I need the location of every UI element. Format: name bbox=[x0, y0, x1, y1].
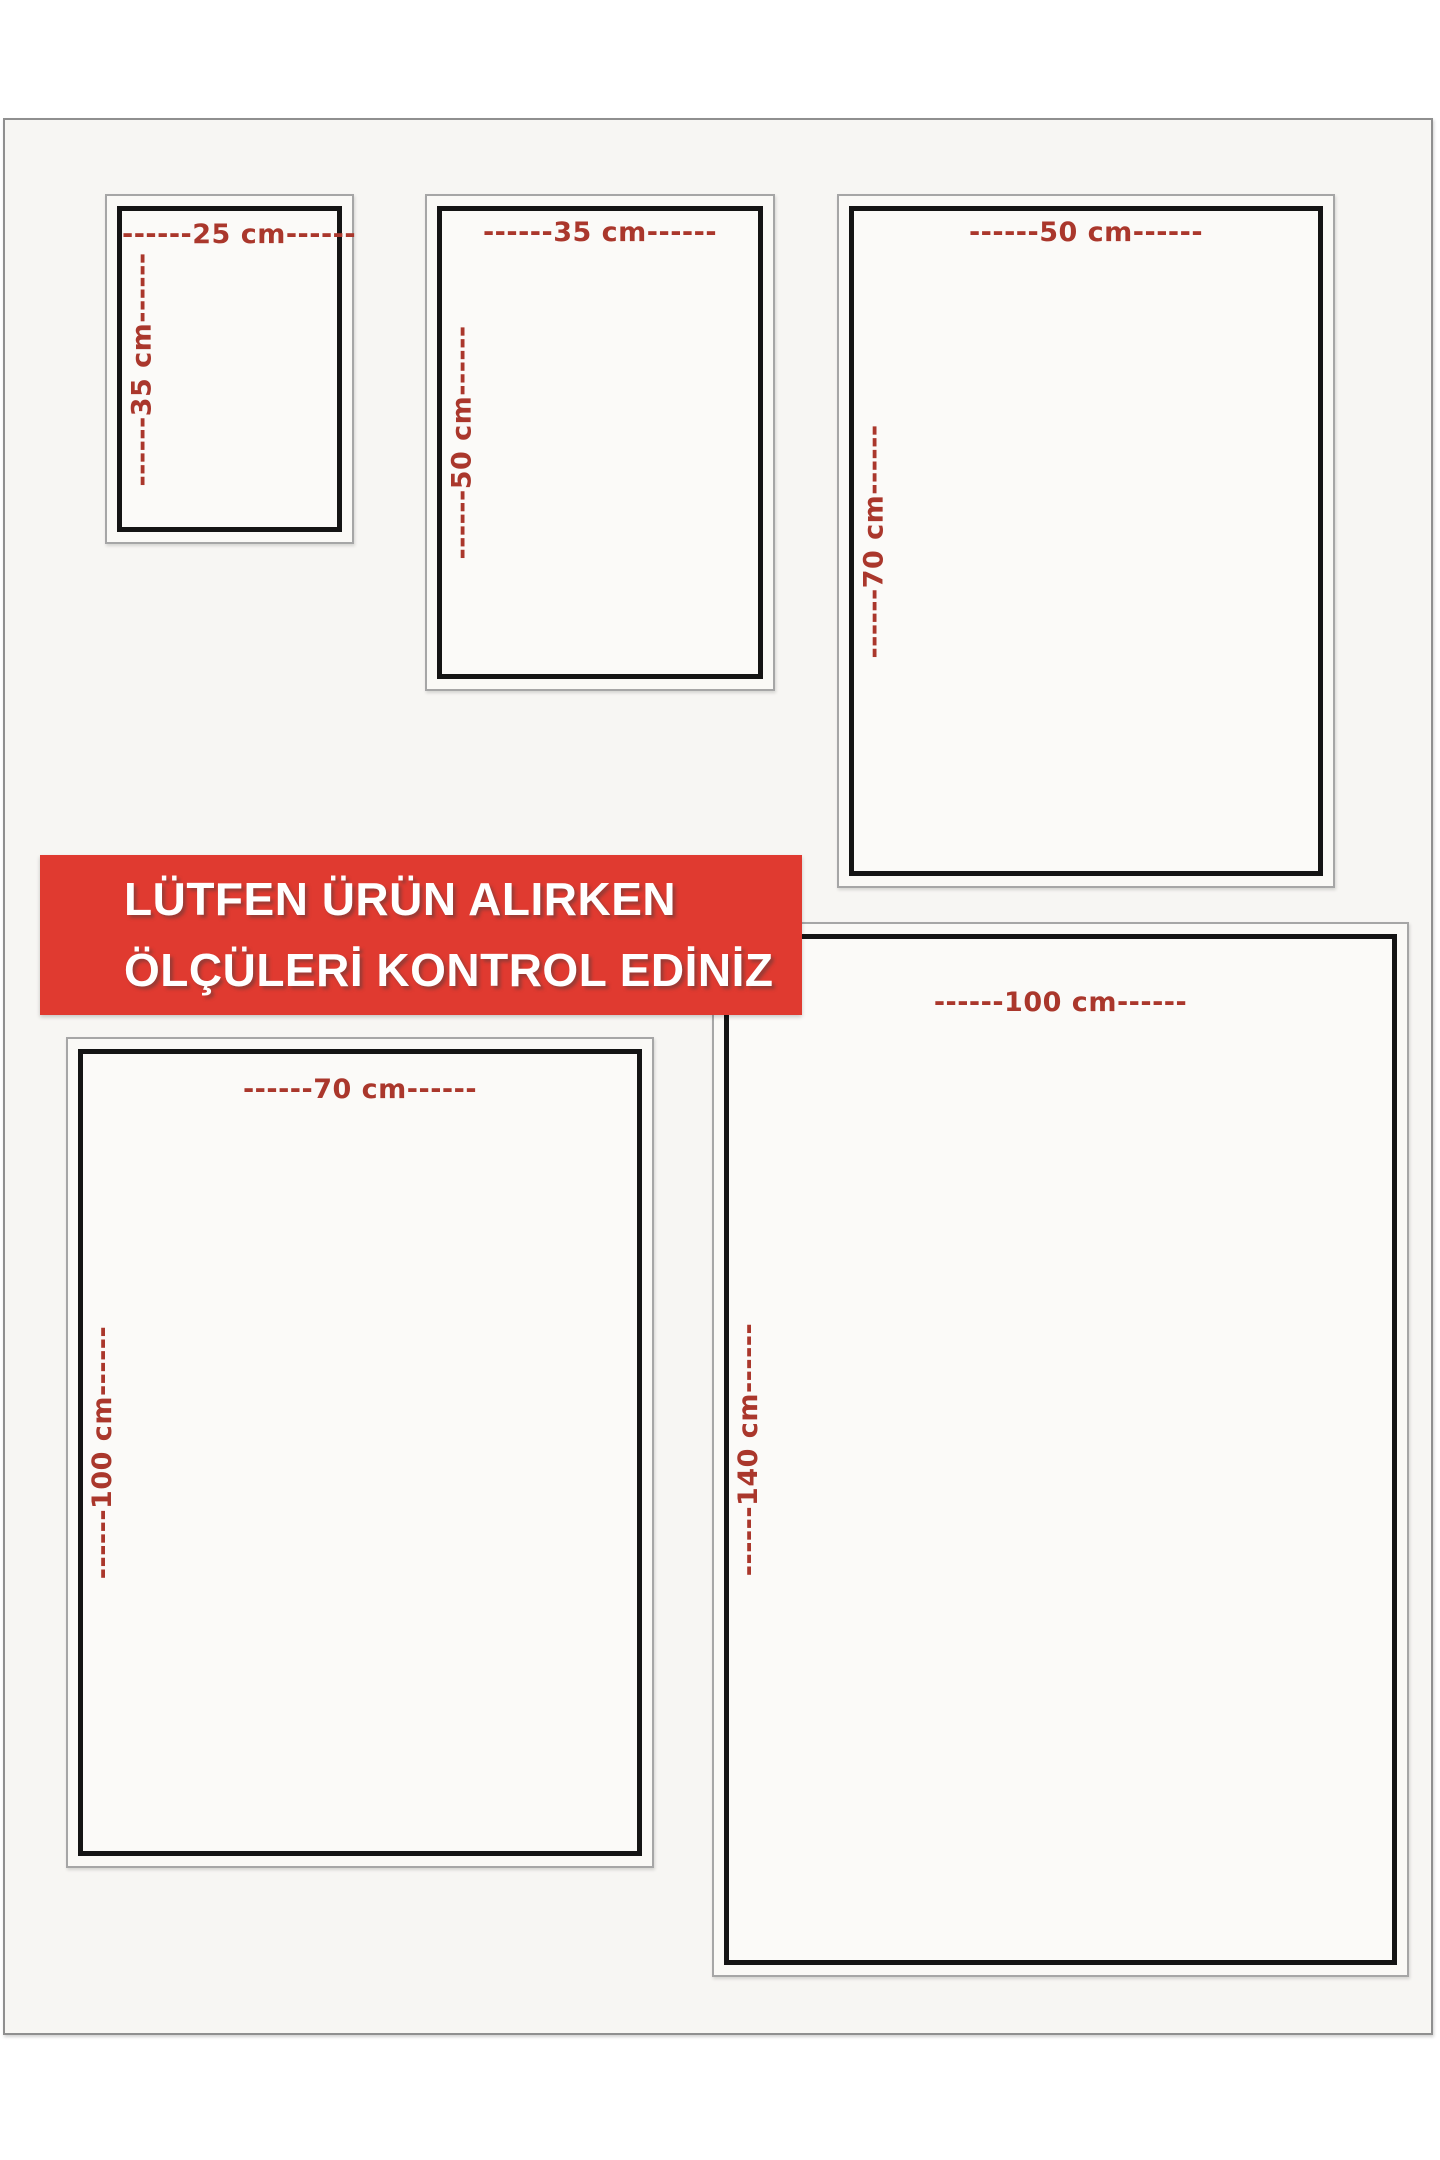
size-box-25x35: ------25 cm------ ------35 cm------ bbox=[105, 194, 354, 544]
height-dimension-label-50cm: ------50 cm------ bbox=[442, 211, 482, 674]
notice-banner: LÜTFEN ÜRÜN ALIRKEN ÖLÇÜLERİ KONTROL EDİ… bbox=[40, 855, 802, 1015]
size-box-50x70: ------50 cm------ ------70 cm------ bbox=[837, 194, 1335, 888]
notice-line-2: ÖLÇÜLERİ KONTROL EDİNİZ bbox=[124, 935, 802, 1006]
height-dimension-text-50cm: ------50 cm------ bbox=[447, 325, 478, 559]
size-box-70x100-frame: ------70 cm------ ------100 cm------ bbox=[78, 1049, 642, 1856]
height-dimension-label-70cm: ------70 cm------ bbox=[854, 211, 894, 871]
width-dimension-label-35cm: ------35 cm------ bbox=[442, 217, 758, 248]
height-dimension-label-35cm: ------35 cm------ bbox=[122, 211, 162, 527]
height-dimension-text-100cm: ------100 cm------ bbox=[88, 1326, 119, 1579]
height-dimension-label-140cm: ------140 cm------ bbox=[729, 939, 769, 1960]
height-dimension-text-140cm: ------140 cm------ bbox=[734, 1323, 765, 1576]
height-dimension-text-70cm: ------70 cm------ bbox=[859, 424, 890, 658]
size-box-35x50: ------35 cm------ ------50 cm------ bbox=[425, 194, 775, 691]
width-dimension-label-70cm: ------70 cm------ bbox=[83, 1074, 637, 1105]
size-box-25x35-frame: ------25 cm------ ------35 cm------ bbox=[117, 206, 342, 532]
size-box-100x140-frame: ------100 cm------ ------140 cm------ bbox=[724, 934, 1397, 1965]
height-dimension-label-100cm: ------100 cm------ bbox=[83, 1054, 123, 1851]
size-box-100x140: ------100 cm------ ------140 cm------ bbox=[712, 922, 1409, 1977]
width-dimension-label-100cm: ------100 cm------ bbox=[729, 987, 1392, 1018]
height-dimension-text-35cm: ------35 cm------ bbox=[127, 252, 158, 486]
width-dimension-label-50cm: ------50 cm------ bbox=[854, 217, 1318, 248]
size-chart-canvas: ------25 cm------ ------35 cm------ ----… bbox=[3, 118, 1433, 2035]
size-box-70x100: ------70 cm------ ------100 cm------ bbox=[66, 1037, 654, 1868]
notice-line-1: LÜTFEN ÜRÜN ALIRKEN bbox=[124, 864, 802, 935]
size-box-50x70-frame: ------50 cm------ ------70 cm------ bbox=[849, 206, 1323, 876]
size-box-35x50-frame: ------35 cm------ ------50 cm------ bbox=[437, 206, 763, 679]
